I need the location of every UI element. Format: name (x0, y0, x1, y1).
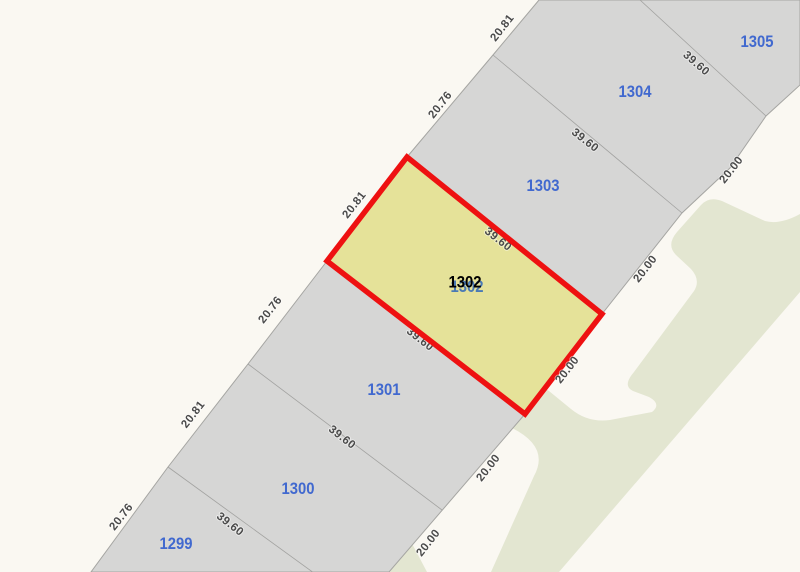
svg-text:1303: 1303 (527, 177, 560, 195)
svg-text:1304: 1304 (619, 83, 653, 101)
svg-text:1299: 1299 (160, 535, 193, 553)
svg-text:1302: 1302 (449, 273, 482, 292)
svg-text:1300: 1300 (282, 480, 315, 498)
svg-text:1301: 1301 (368, 381, 401, 399)
svg-text:1305: 1305 (741, 33, 774, 51)
